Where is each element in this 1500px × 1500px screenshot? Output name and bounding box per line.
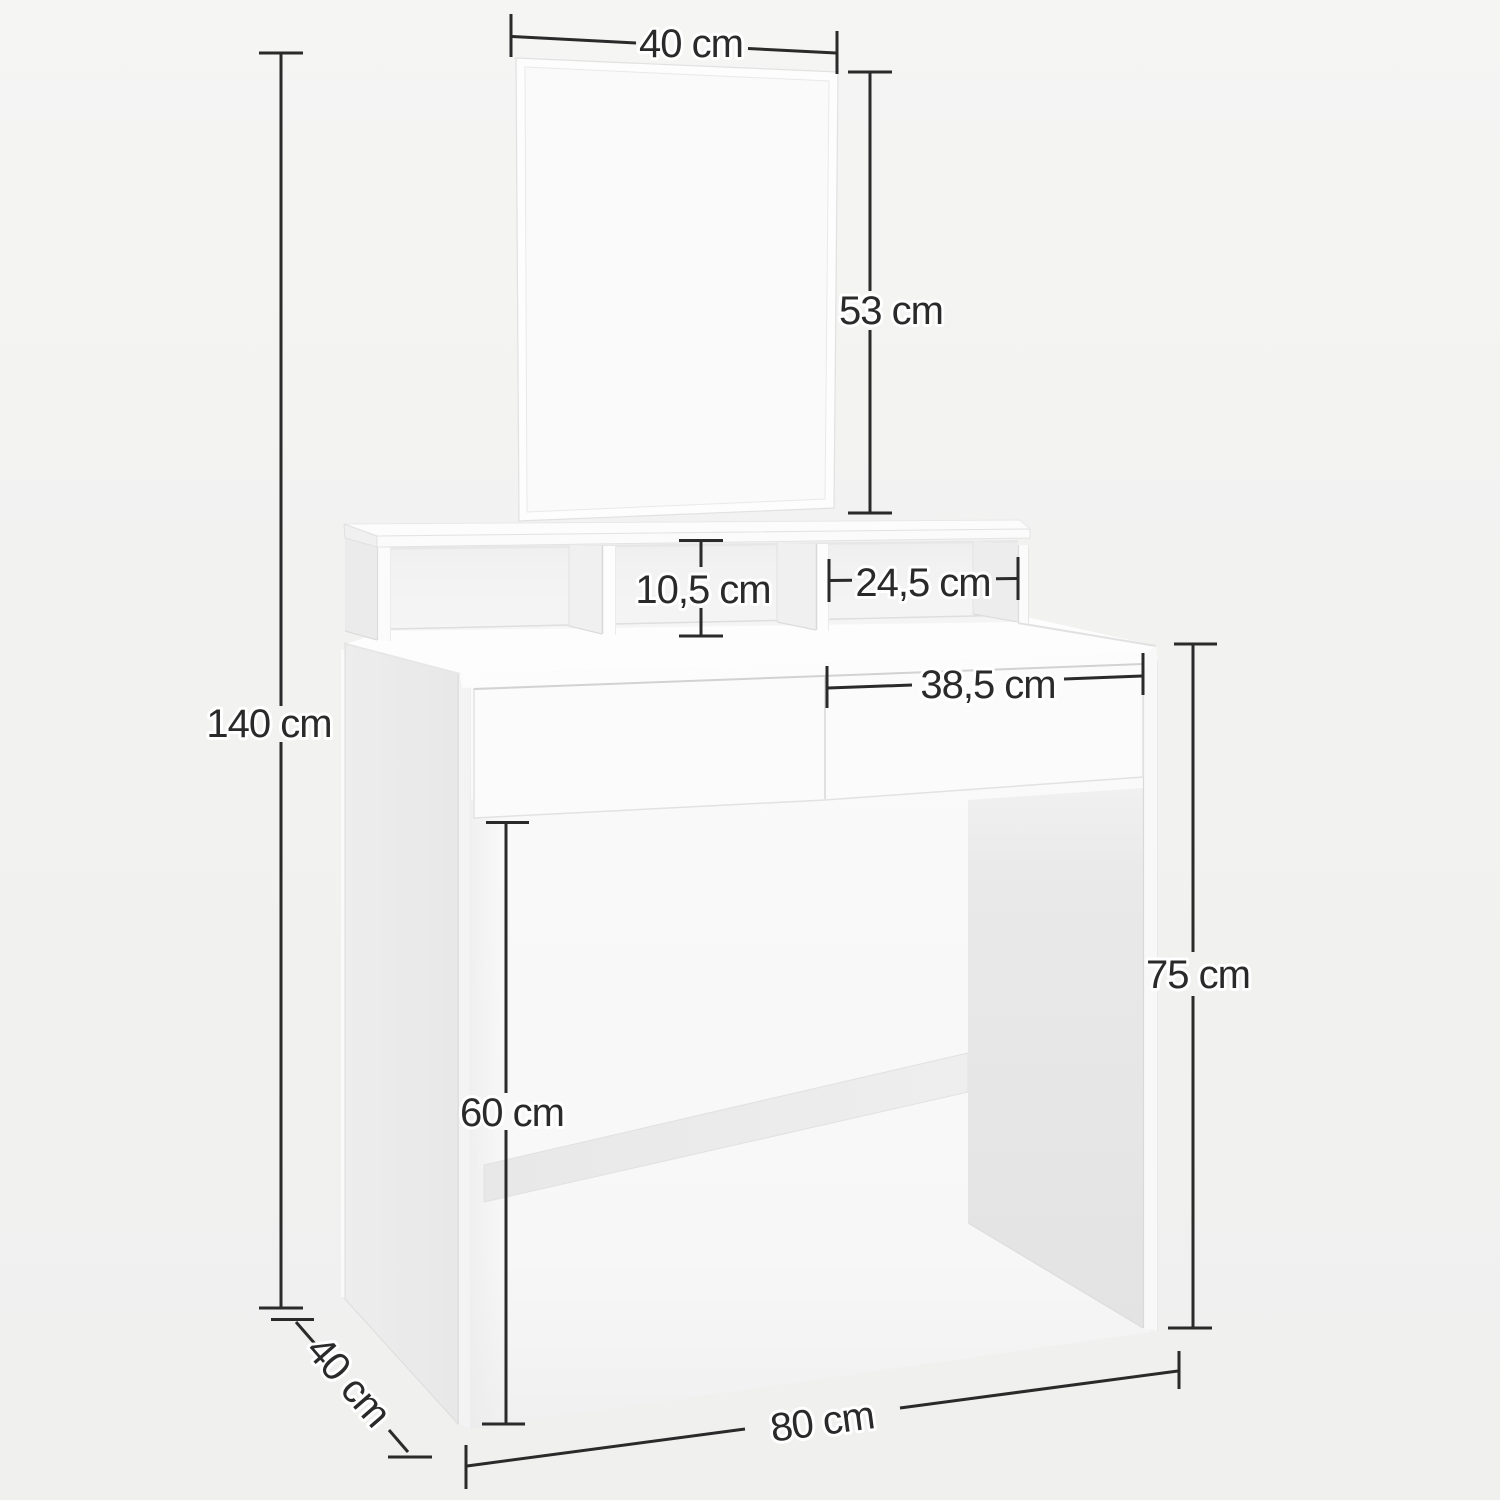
svg-text:60 cm: 60 cm — [460, 1091, 564, 1135]
svg-text:53 cm: 53 cm — [839, 289, 943, 333]
svg-text:24,5 cm: 24,5 cm — [855, 561, 990, 605]
svg-text:38,5 cm: 38,5 cm — [920, 663, 1055, 707]
svg-text:40 cm: 40 cm — [639, 22, 743, 66]
svg-text:10,5 cm: 10,5 cm — [635, 568, 770, 612]
svg-text:75 cm: 75 cm — [1146, 953, 1250, 997]
svg-text:140 cm: 140 cm — [206, 702, 331, 746]
